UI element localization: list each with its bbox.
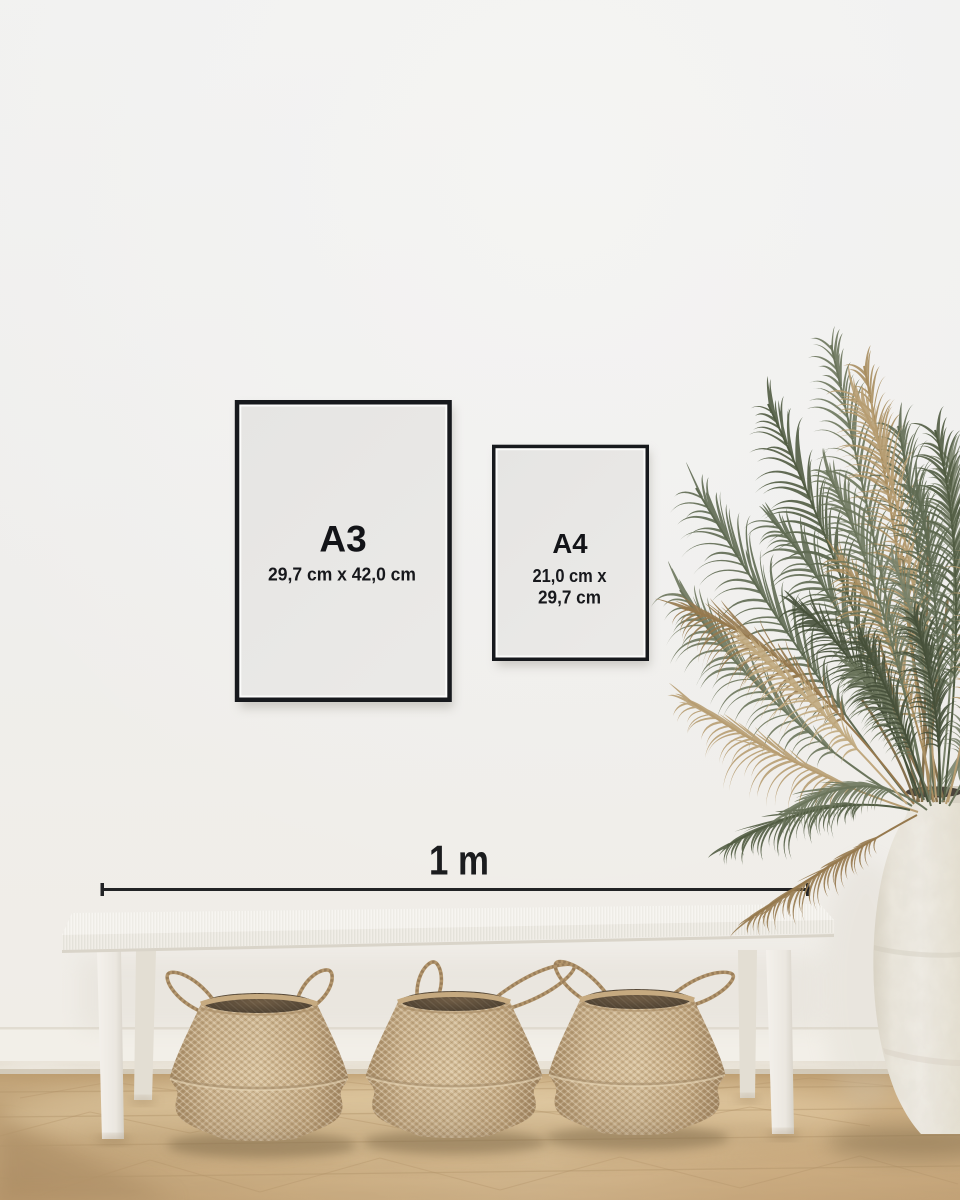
svg-text:21,0 cm x: 21,0 cm x [533,566,607,586]
svg-text:1 m: 1 m [429,837,489,884]
svg-text:29,7 cm: 29,7 cm [538,588,601,608]
svg-text:A3: A3 [319,519,366,560]
svg-text:A4: A4 [552,528,588,559]
svg-text:29,7 cm x 42,0 cm: 29,7 cm x 42,0 cm [268,565,416,585]
